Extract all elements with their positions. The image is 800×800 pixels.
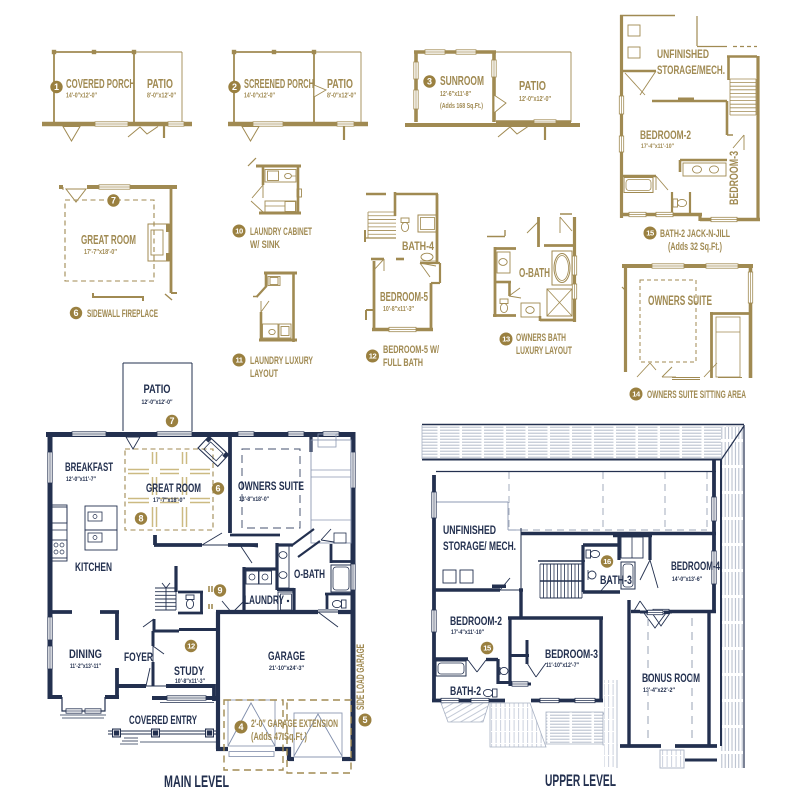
svg-text:BATH-2: BATH-2 <box>450 684 481 698</box>
svg-text:LUXURY LAYOUT: LUXURY LAYOUT <box>516 345 572 357</box>
svg-text:LAUNDRY LUXURY: LAUNDRY LUXURY <box>250 355 313 367</box>
svg-text:11′-2″x13′-11″: 11′-2″x13′-11″ <box>70 663 101 670</box>
svg-text:SIDE LOAD GARAGE: SIDE LOAD GARAGE <box>355 644 367 710</box>
svg-text:12′-0″x12′-0″: 12′-0″x12′-0″ <box>142 399 173 406</box>
svg-text:PATIO: PATIO <box>144 382 171 396</box>
svg-text:UNFINISHED: UNFINISHED <box>657 49 709 61</box>
svg-text:SCREENED PORCH: SCREENED PORCH <box>244 77 314 91</box>
svg-text:BEDROOM-2: BEDROOM-2 <box>640 130 691 142</box>
svg-text:LAUNDRY CABINET: LAUNDRY CABINET <box>250 226 312 238</box>
svg-text:KITCHEN: KITCHEN <box>75 560 112 574</box>
svg-text:BEDROOM-3: BEDROOM-3 <box>545 647 598 661</box>
svg-text:LAYOUT: LAYOUT <box>250 368 278 380</box>
svg-text:12: 12 <box>369 352 377 361</box>
svg-text:COVERED PORCH: COVERED PORCH <box>66 77 135 91</box>
svg-text:12: 12 <box>187 642 195 651</box>
svg-text:BATH-4: BATH-4 <box>402 241 434 253</box>
svg-text:UPPER LEVEL: UPPER LEVEL <box>545 771 616 790</box>
svg-text:5: 5 <box>362 715 367 725</box>
svg-text:1: 1 <box>54 82 59 92</box>
svg-text:BREAKFAST: BREAKFAST <box>65 460 113 474</box>
svg-text:13: 13 <box>502 335 510 344</box>
svg-text:17′-4″x11′-10″: 17′-4″x11′-10″ <box>641 143 674 150</box>
svg-text:BEDROOM-5: BEDROOM-5 <box>380 290 428 304</box>
svg-text:STUDY: STUDY <box>174 664 204 678</box>
svg-text:GREAT ROOM: GREAT ROOM <box>81 233 136 247</box>
svg-text:UNFINISHED: UNFINISHED <box>443 523 496 537</box>
svg-text:8′-0″x12′-0″: 8′-0″x12′-0″ <box>147 93 176 100</box>
svg-text:FOYER: FOYER <box>124 650 153 664</box>
svg-text:16: 16 <box>603 557 611 566</box>
svg-text:OWNERS SUITE: OWNERS SUITE <box>648 293 712 308</box>
svg-text:9: 9 <box>217 586 222 596</box>
svg-text:10′-8″x11′-3″: 10′-8″x11′-3″ <box>383 306 414 313</box>
svg-text:8: 8 <box>138 514 143 524</box>
svg-text:SUNROOM: SUNROOM <box>440 74 484 88</box>
svg-text:6: 6 <box>73 308 78 318</box>
svg-text:14′-0″x12′-0″: 14′-0″x12′-0″ <box>244 93 275 100</box>
svg-text:(Adds 47 Sq.Ft.): (Adds 47 Sq.Ft.) <box>251 731 307 743</box>
svg-text:O-BATH: O-BATH <box>294 567 325 581</box>
svg-text:O-BATH: O-BATH <box>519 266 550 280</box>
svg-text:15: 15 <box>483 644 492 653</box>
svg-text:OWNERS SUITE: OWNERS SUITE <box>238 479 304 493</box>
svg-text:BEDROOM-3: BEDROOM-3 <box>729 151 741 205</box>
svg-text:BEDROOM-4: BEDROOM-4 <box>671 559 720 573</box>
svg-text:12′-0″x12′-0″: 12′-0″x12′-0″ <box>519 96 551 103</box>
svg-text:15: 15 <box>646 229 655 238</box>
svg-text:PATIO: PATIO <box>147 77 173 91</box>
svg-text:2′-0″ GARAGE EXTENSION: 2′-0″ GARAGE EXTENSION <box>251 718 338 730</box>
svg-text:14: 14 <box>632 390 641 399</box>
svg-text:12′-6″x11′-8″: 12′-6″x11′-8″ <box>440 91 471 98</box>
svg-text:BEDROOM-2: BEDROOM-2 <box>450 614 502 628</box>
svg-text:GREAT ROOM: GREAT ROOM <box>146 481 201 495</box>
svg-text:PATIO: PATIO <box>519 79 546 93</box>
svg-text:6: 6 <box>215 484 220 494</box>
svg-text:17′-4″x11′-10″: 17′-4″x11′-10″ <box>451 629 484 636</box>
svg-text:10′-8″x11′-3″: 10′-8″x11′-3″ <box>175 678 205 685</box>
svg-text:FULL BATH: FULL BATH <box>383 357 423 369</box>
svg-text:GARAGE: GARAGE <box>268 649 305 663</box>
svg-text:7: 7 <box>169 416 174 426</box>
svg-text:STORAGE/MECH.: STORAGE/MECH. <box>657 65 725 77</box>
svg-text:10: 10 <box>235 227 243 236</box>
svg-text:(Adds 168 Sq.Ft.): (Adds 168 Sq.Ft.) <box>440 101 483 110</box>
svg-text:OWNERS SUITE SITTING AREA: OWNERS SUITE SITTING AREA <box>647 389 746 401</box>
svg-text:2: 2 <box>232 82 237 92</box>
svg-text:COVERED ENTRY: COVERED ENTRY <box>129 713 197 727</box>
svg-text:STORAGE/ MECH.: STORAGE/ MECH. <box>443 539 516 553</box>
svg-text:DINING: DINING <box>69 647 102 661</box>
svg-text:SIDEWALL FIREPLACE: SIDEWALL FIREPLACE <box>87 308 158 320</box>
svg-text:BATH-2 JACK-N-JILL: BATH-2 JACK-N-JILL <box>660 228 730 240</box>
svg-text:12′-0″x11′-7″: 12′-0″x11′-7″ <box>66 476 96 483</box>
svg-text:BONUS ROOM: BONUS ROOM <box>642 671 700 685</box>
svg-text:BEDROOM-5 W/: BEDROOM-5 W/ <box>383 344 439 356</box>
svg-text:OWNERS BATH: OWNERS BATH <box>516 332 566 344</box>
svg-text:21′-10″x24′-3″: 21′-10″x24′-3″ <box>269 665 304 672</box>
svg-text:(Adds 32 Sq.Ft.): (Adds 32 Sq.Ft.) <box>668 241 722 253</box>
svg-text:BATH-3: BATH-3 <box>600 573 632 587</box>
svg-text:14′-0″x12′-0″: 14′-0″x12′-0″ <box>66 93 97 100</box>
svg-text:W/ SINK: W/ SINK <box>250 239 280 251</box>
svg-text:11′-10″x12′-7″: 11′-10″x12′-7″ <box>546 662 579 669</box>
svg-text:13′-8″x18′-0″: 13′-8″x18′-0″ <box>239 496 269 503</box>
svg-text:4: 4 <box>238 722 243 732</box>
svg-text:17′-7″x18′-0″: 17′-7″x18′-0″ <box>153 497 185 504</box>
svg-text:MAIN LEVEL: MAIN LEVEL <box>164 772 229 791</box>
svg-text:PATIO: PATIO <box>327 77 353 91</box>
svg-text:14′-0″x13′-6″: 14′-0″x13′-6″ <box>672 576 702 583</box>
svg-text:8′-0″x12′-0″: 8′-0″x12′-0″ <box>327 93 356 100</box>
svg-text:17′-7″x18′-0″: 17′-7″x18′-0″ <box>84 249 118 256</box>
svg-text:3: 3 <box>427 77 432 87</box>
svg-text:7: 7 <box>111 196 116 206</box>
